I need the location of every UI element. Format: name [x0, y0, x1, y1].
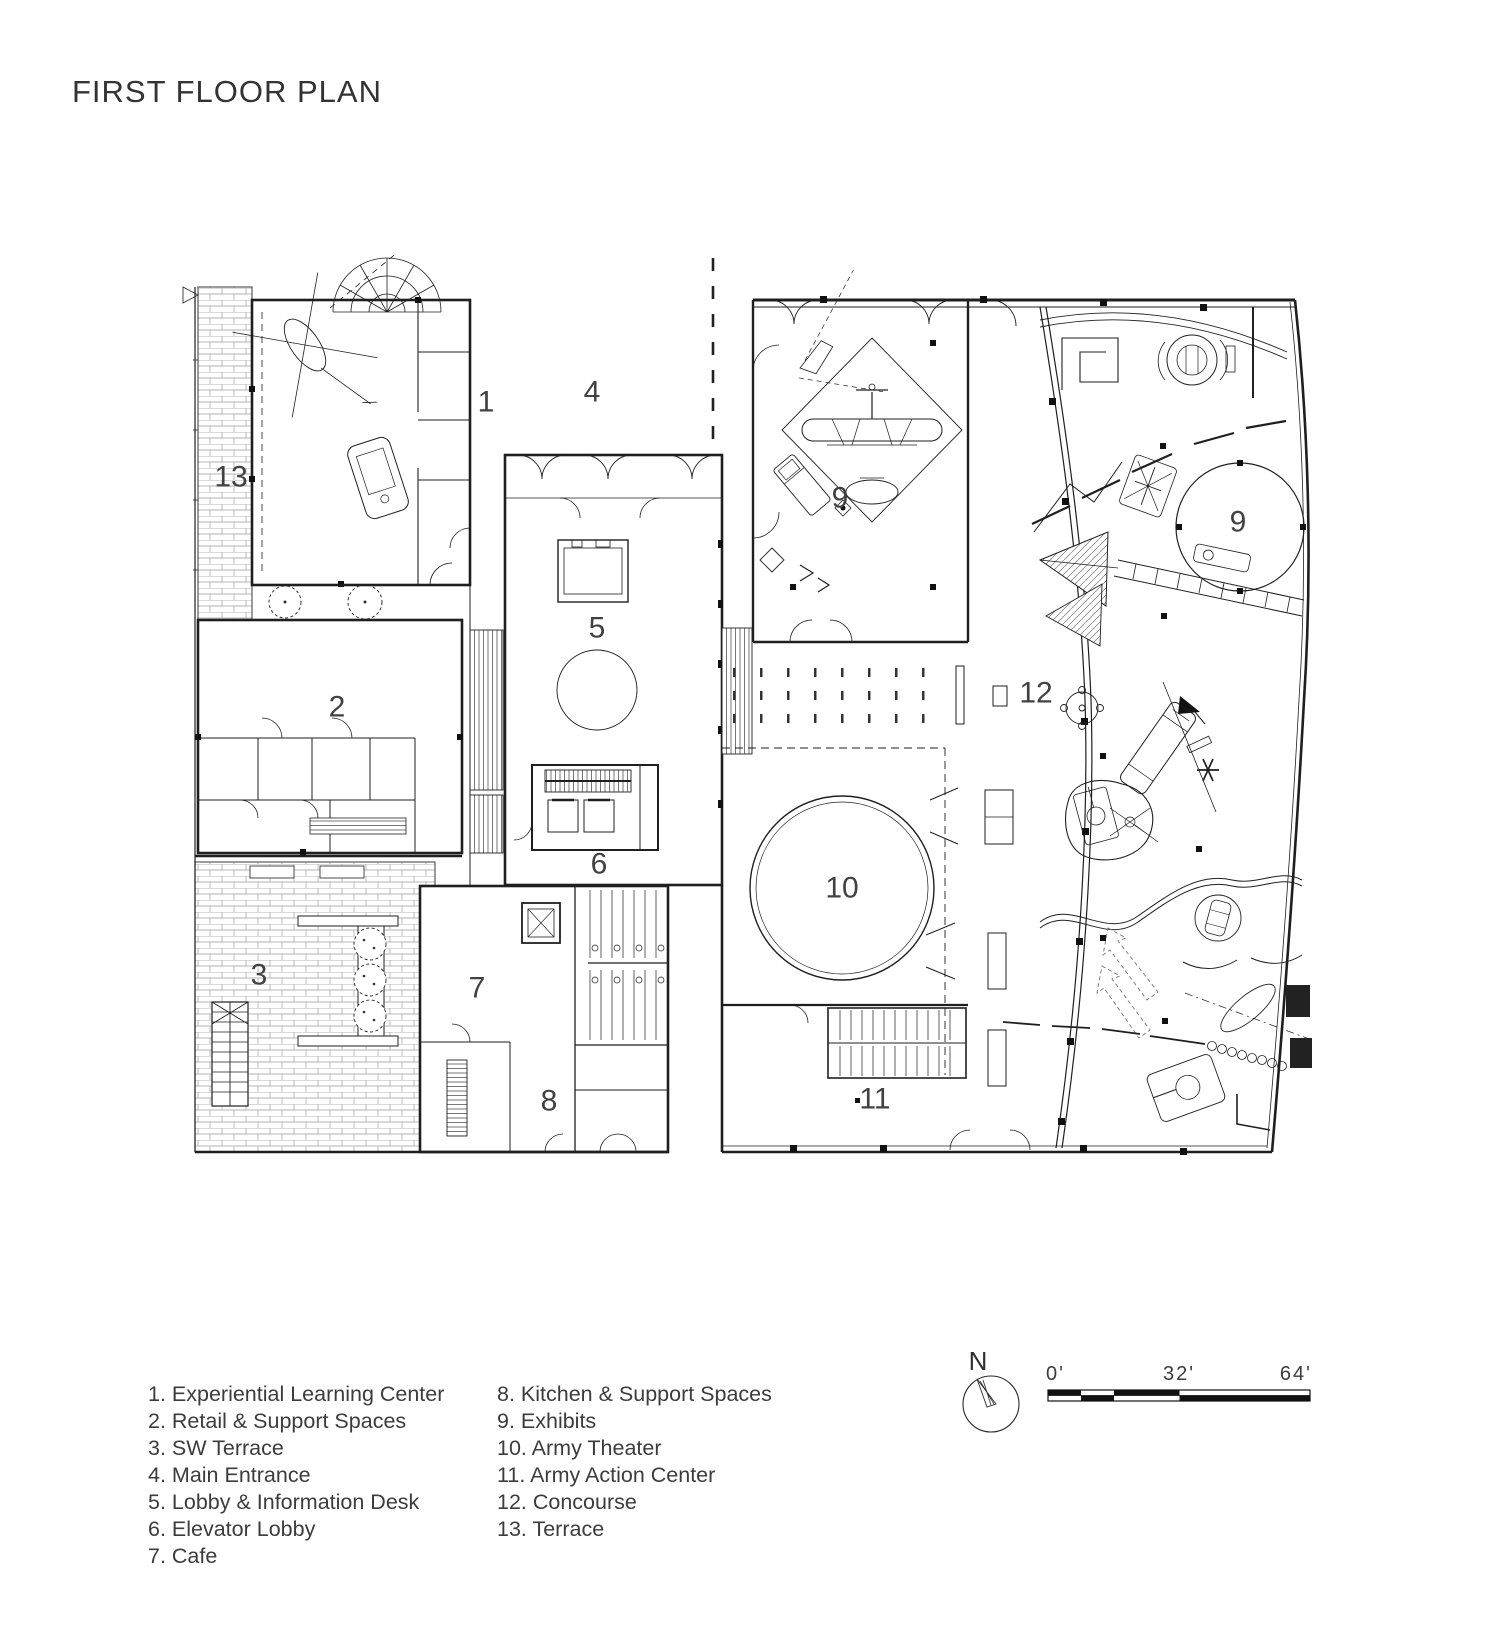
service-elevator — [522, 903, 560, 943]
biplane-exhibit — [802, 384, 942, 504]
legend-item: 3. SW Terrace — [148, 1435, 444, 1462]
room-9-nw-exhibits — [753, 270, 968, 642]
terrace-trees — [354, 928, 386, 1032]
fan-structure — [1040, 532, 1118, 646]
scale-label-0: 0' — [1046, 1363, 1065, 1386]
legend-column-1: 1. Experiential Learning Center2. Retail… — [148, 1381, 444, 1570]
square-spiral-wall — [1062, 338, 1118, 390]
legend-item: 7. Cafe — [148, 1543, 444, 1570]
legend-item: 5. Lobby & Information Desk — [148, 1489, 444, 1516]
round-exhibit-9e — [1114, 460, 1306, 616]
floor-marker — [835, 500, 851, 516]
car-exhibit — [1195, 895, 1241, 941]
scale-label-64: 64' — [1280, 1363, 1312, 1386]
cafe-kitchen-block — [420, 886, 668, 1152]
legend-item: 4. Main Entrance — [148, 1462, 444, 1489]
legend-item: 12. Concourse — [497, 1489, 772, 1516]
legend-item: 9. Exhibits — [497, 1408, 772, 1435]
legend-item: 8. Kitchen & Support Spaces — [497, 1381, 772, 1408]
tank-exhibit — [1146, 1053, 1227, 1123]
asterisk-marker — [1197, 759, 1219, 781]
room-2-retail — [195, 620, 463, 855]
terrace-stair — [212, 1002, 248, 1106]
legend-item: 11. Army Action Center — [497, 1462, 772, 1489]
scale-label-32: 32' — [1163, 1363, 1195, 1386]
north-arrow — [963, 1376, 1019, 1432]
ramp-strip — [470, 585, 503, 885]
left-complex — [183, 252, 723, 1152]
arrow-graphics — [1097, 928, 1158, 1038]
truck-exhibit — [773, 454, 831, 517]
round-table — [1158, 335, 1235, 385]
wavy-wall — [1040, 876, 1302, 930]
scale-bar — [1048, 1390, 1310, 1401]
planting-band — [252, 585, 470, 619]
concourse-area — [733, 307, 1092, 1148]
legend-item: 13. Terrace — [497, 1516, 772, 1543]
lobby-and-entrance — [505, 455, 723, 906]
floor-plan-page: { "title": "FIRST FLOOR PLAN", "legend":… — [0, 0, 1512, 1640]
fighter-plane-exhibit — [766, 270, 913, 424]
legend-item: 2. Retail & Support Spaces — [148, 1408, 444, 1435]
army-action-center-area — [790, 1005, 1030, 1150]
terrace-13-area — [183, 287, 252, 620]
right-complex — [722, 270, 1312, 1155]
legend-item: 1. Experiential Learning Center — [148, 1381, 444, 1408]
bus-exhibit — [1118, 700, 1198, 796]
concourse-seat-grid — [733, 668, 925, 723]
legend-item: 6. Elevator Lobby — [148, 1516, 444, 1543]
room-1-experiential-learning — [233, 252, 470, 587]
elevator-lobby-block — [514, 765, 658, 850]
legend-column-2: 8. Kitchen & Support Spaces9. Exhibits10… — [497, 1381, 772, 1543]
army-theater-area — [722, 748, 968, 1075]
legend-item: 10. Army Theater — [497, 1435, 772, 1462]
north-label: N — [969, 1346, 988, 1377]
